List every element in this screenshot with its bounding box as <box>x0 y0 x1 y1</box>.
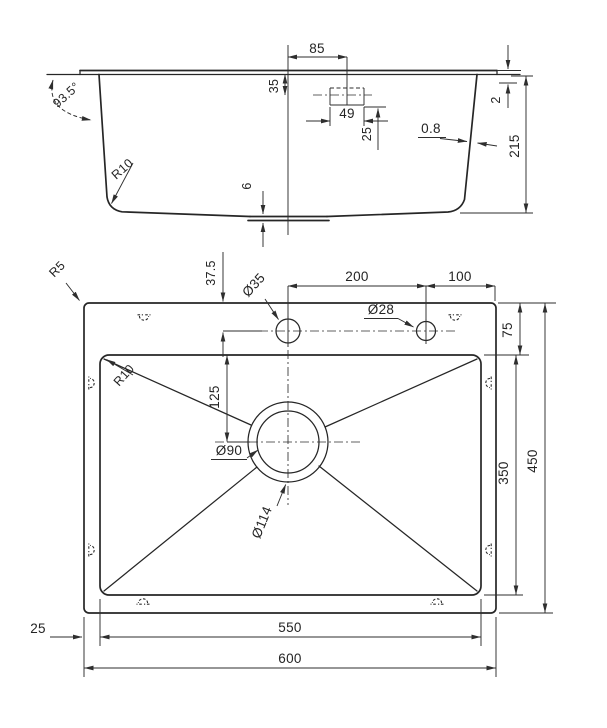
dim-125: 125 <box>207 356 250 443</box>
sink-technical-drawing: 85 35 49 25 0.8 <box>0 0 607 728</box>
sink-rim-outline <box>47 71 520 75</box>
dim-25-side-label: 25 <box>360 127 374 142</box>
dia-114-label: Ø114 <box>249 504 275 541</box>
dim-200: 200 <box>288 269 426 320</box>
plan-view: R5 37.5 Ø35 200 100 Ø28 <box>30 252 556 677</box>
dim-350-label: 350 <box>496 461 511 484</box>
dim-37-5: 37.5 <box>204 252 262 357</box>
mounting-clips <box>89 315 491 604</box>
radius-r5: R5 <box>46 258 79 300</box>
dim-85-label: 85 <box>309 41 325 56</box>
dim-25-side: 25 <box>360 109 378 151</box>
dim-6-label: 6 <box>240 182 254 189</box>
radius-r5-label: R5 <box>46 258 68 280</box>
dim-350: 350 <box>484 356 523 596</box>
dim-49: 49 <box>306 106 388 126</box>
dim-450: 450 <box>499 304 553 614</box>
dim-25-plan: 25 <box>30 621 82 637</box>
angle-93-5-label: 93.5° <box>50 80 82 111</box>
inner-basin-outline <box>100 355 481 595</box>
dim-600-label: 600 <box>278 651 301 666</box>
drawing-sheet: 85 35 49 25 0.8 <box>0 0 607 728</box>
dia-35: Ø35 <box>239 270 278 319</box>
dim-6: 6 <box>240 182 263 247</box>
dim-25-plan-label: 25 <box>30 621 46 636</box>
dim-550-label: 550 <box>278 620 301 635</box>
dia-28-label: Ø28 <box>368 302 394 317</box>
faucet-hole-right <box>417 319 436 344</box>
dim-100: 100 <box>426 269 495 301</box>
radius-r10-side-label: R10 <box>109 156 136 182</box>
dim-35: 35 <box>267 75 285 96</box>
dim-75-label: 75 <box>500 322 515 338</box>
dim-450-label: 450 <box>525 449 540 472</box>
dim-35-label: 35 <box>267 79 281 94</box>
side-section-view: 85 35 49 25 0.8 <box>47 41 533 247</box>
outer-rim-outline <box>84 303 496 613</box>
dim-100-label: 100 <box>448 269 471 284</box>
faucet-recess-detail <box>313 88 386 107</box>
faucet-hole-left <box>276 316 300 347</box>
dim-0-8-label: 0.8 <box>421 121 441 136</box>
dia-114: Ø114 <box>249 485 286 541</box>
dim-550: 550 <box>100 599 481 646</box>
dim-0-8: 0.8 <box>418 121 497 146</box>
dia-35-label: Ø35 <box>239 270 268 300</box>
radius-r10-side: R10 <box>109 156 136 204</box>
dia-90-label: Ø90 <box>216 443 242 458</box>
dim-125-label: 125 <box>207 385 222 408</box>
dim-215-label: 215 <box>507 134 522 157</box>
dim-37-5-label: 37.5 <box>204 260 218 286</box>
basin-diagonals <box>104 359 477 591</box>
radius-r10-plan: R10 <box>107 360 138 389</box>
dim-49-label: 49 <box>339 106 355 121</box>
radius-r10-plan-label: R10 <box>111 362 137 389</box>
dim-2-label: 2 <box>489 96 503 103</box>
dia-28: Ø28 <box>364 302 414 327</box>
dim-2: 2 <box>489 45 521 108</box>
angle-93-5: 93.5° <box>50 80 91 120</box>
dim-200-label: 200 <box>345 269 368 284</box>
